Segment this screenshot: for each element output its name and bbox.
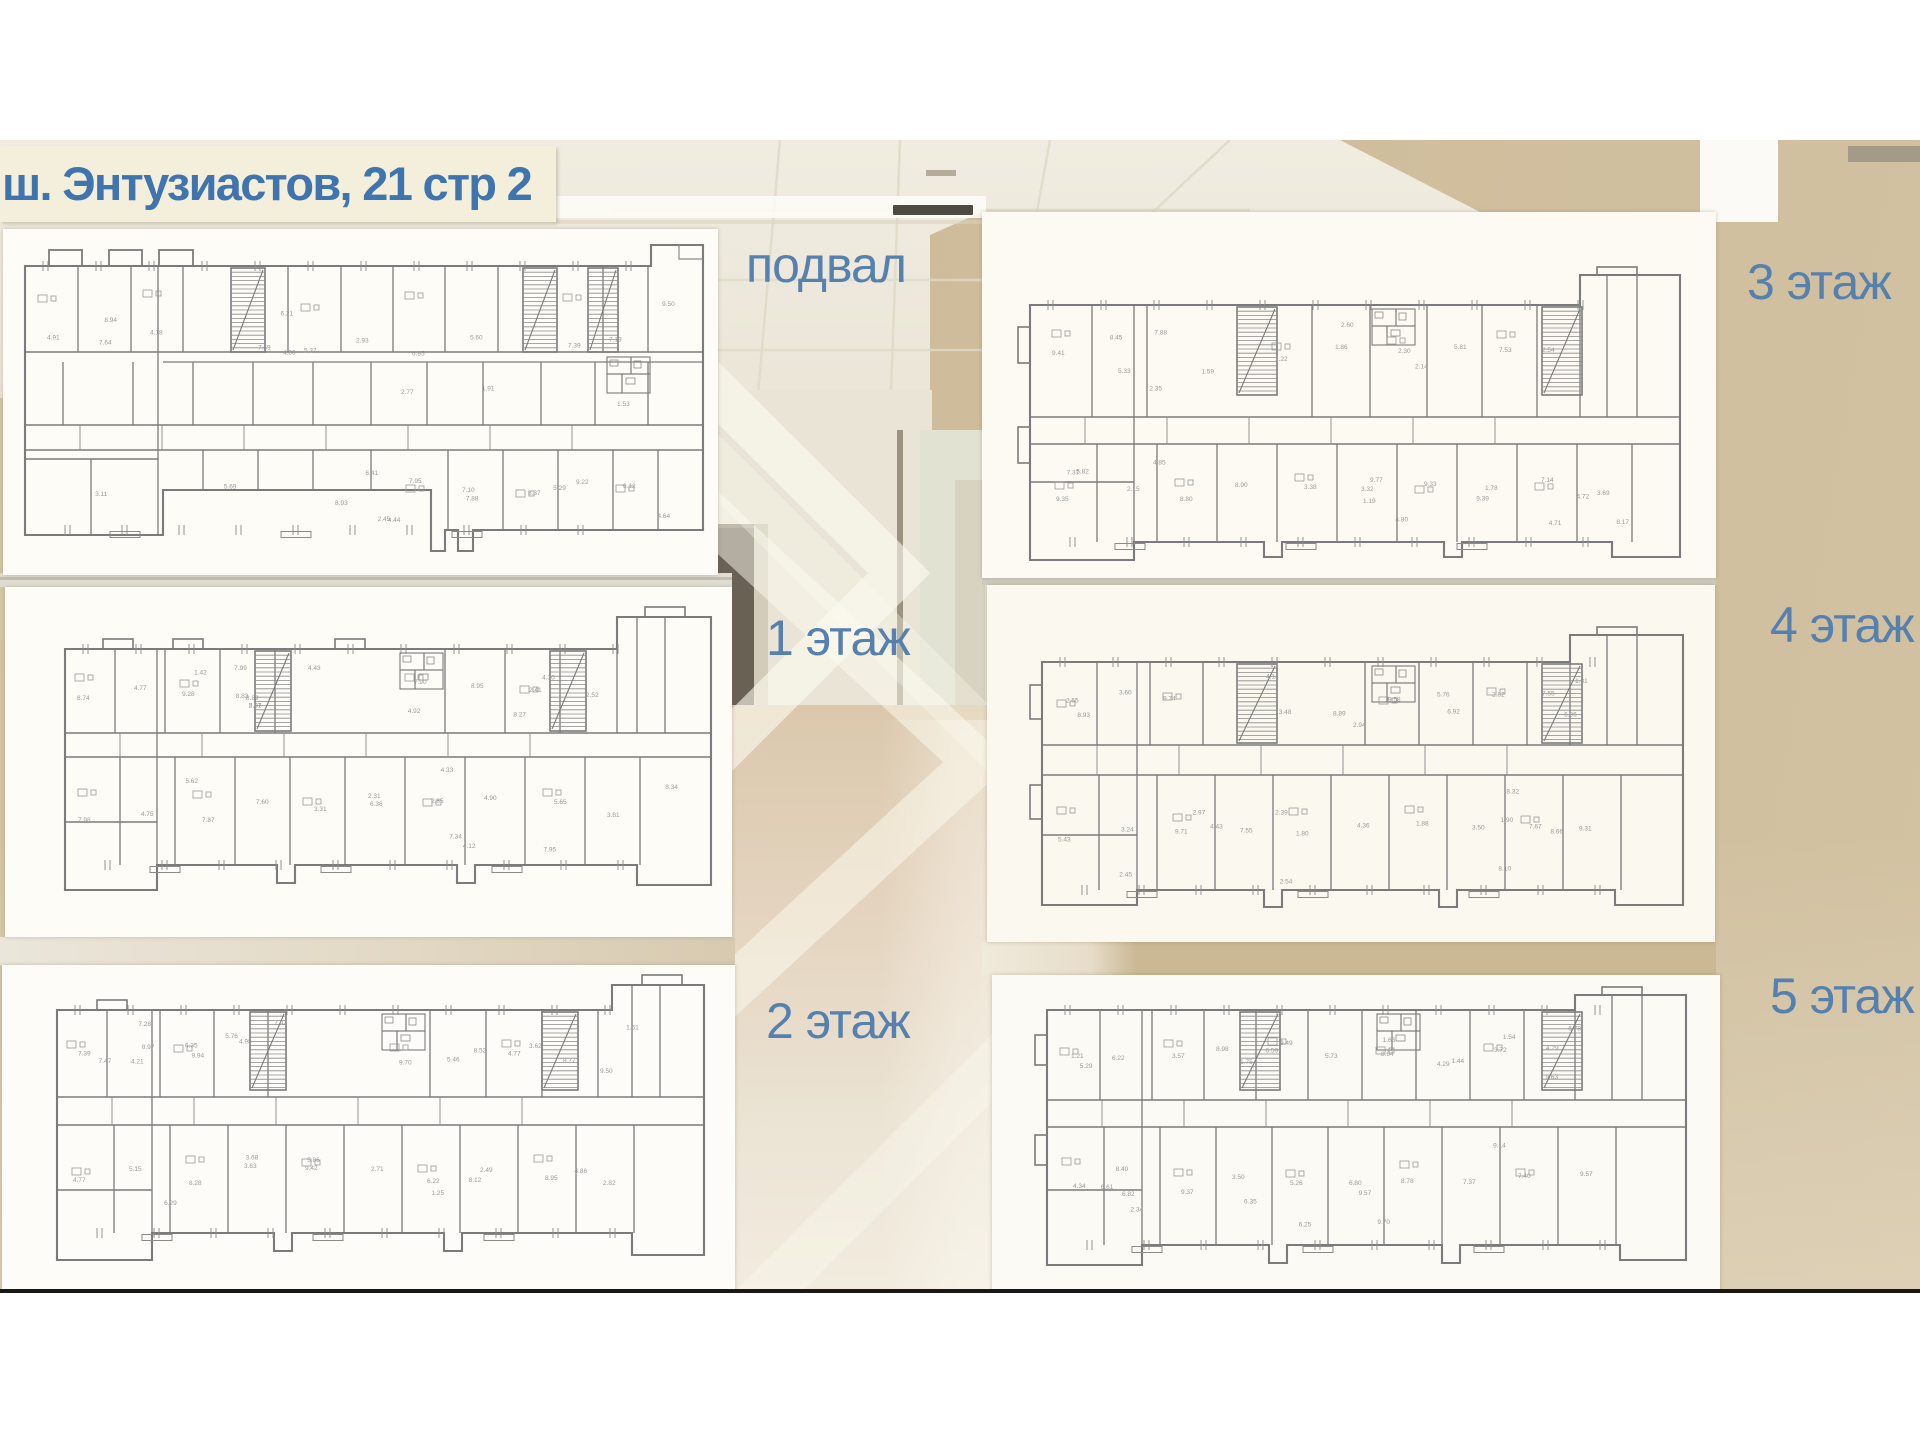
- svg-text:2.93: 2.93: [356, 338, 369, 345]
- svg-text:7.60: 7.60: [256, 799, 269, 806]
- svg-text:1.63: 1.63: [1383, 1037, 1396, 1044]
- svg-text:8.74: 8.74: [77, 695, 90, 702]
- svg-text:4.98: 4.98: [239, 1039, 252, 1046]
- svg-text:4.36: 4.36: [1357, 823, 1370, 830]
- svg-text:1.91: 1.91: [482, 385, 495, 392]
- svg-text:3.72: 3.72: [1494, 1047, 1507, 1054]
- svg-text:2.94: 2.94: [1353, 722, 1366, 729]
- svg-text:2.31: 2.31: [368, 793, 381, 800]
- svg-text:3.69: 3.69: [1597, 490, 1610, 497]
- svg-text:5.15: 5.15: [129, 1166, 142, 1173]
- svg-text:6.29: 6.29: [164, 1200, 177, 1207]
- svg-text:4.77: 4.77: [508, 1051, 521, 1058]
- svg-text:9.35: 9.35: [1056, 496, 1069, 503]
- svg-text:4.43: 4.43: [308, 665, 321, 672]
- svg-text:7.88: 7.88: [1154, 330, 1167, 337]
- svg-text:9.70: 9.70: [399, 1060, 412, 1067]
- svg-text:4.71: 4.71: [1549, 520, 1562, 527]
- svg-text:9.70: 9.70: [1377, 1219, 1390, 1226]
- svg-text:8.28: 8.28: [189, 1180, 202, 1187]
- svg-text:8.98: 8.98: [1216, 1046, 1229, 1053]
- svg-text:7.10: 7.10: [462, 487, 475, 494]
- svg-text:9.74: 9.74: [1163, 696, 1176, 703]
- svg-text:8.94: 8.94: [104, 317, 117, 324]
- svg-text:9.14: 9.14: [1493, 1142, 1506, 1149]
- svg-text:4.80: 4.80: [283, 349, 296, 356]
- svg-text:6.59: 6.59: [1266, 1047, 1279, 1054]
- svg-text:7.55: 7.55: [1240, 828, 1253, 835]
- svg-text:2.60: 2.60: [1341, 322, 1354, 329]
- svg-text:6.61: 6.61: [1101, 1184, 1114, 1191]
- svg-text:9.58: 9.58: [1388, 697, 1401, 704]
- svg-text:3.11: 3.11: [95, 491, 108, 498]
- svg-text:4.29: 4.29: [1437, 1061, 1450, 1068]
- svg-text:2.77: 2.77: [401, 389, 414, 396]
- svg-text:3.62: 3.62: [529, 1043, 542, 1050]
- svg-text:4.92: 4.92: [408, 708, 421, 715]
- svg-text:5.60: 5.60: [470, 335, 483, 342]
- svg-text:6.22: 6.22: [1112, 1055, 1125, 1062]
- svg-text:2.91: 2.91: [249, 703, 262, 710]
- svg-text:9.94: 9.94: [191, 1052, 204, 1059]
- svg-text:7.37: 7.37: [1463, 1179, 1476, 1186]
- svg-text:6.36: 6.36: [370, 801, 383, 808]
- svg-text:3.31: 3.31: [314, 806, 327, 813]
- svg-text:7.28: 7.28: [138, 1021, 151, 1028]
- svg-text:3.60: 3.60: [1119, 690, 1132, 697]
- svg-text:9.41: 9.41: [1052, 350, 1065, 357]
- svg-text:8.34: 8.34: [665, 784, 678, 791]
- svg-text:1.90: 1.90: [1501, 817, 1514, 824]
- svg-text:6.92: 6.92: [1447, 708, 1460, 715]
- svg-text:1.44: 1.44: [1451, 1058, 1464, 1065]
- svg-text:3.32: 3.32: [1361, 486, 1374, 493]
- svg-text:4.43: 4.43: [1210, 823, 1223, 830]
- svg-text:7.19: 7.19: [609, 337, 622, 344]
- svg-text:2.49: 2.49: [480, 1167, 493, 1174]
- svg-text:5.37: 5.37: [304, 348, 317, 355]
- svg-text:5.29: 5.29: [1080, 1063, 1093, 1070]
- svg-text:3.50: 3.50: [1232, 1174, 1245, 1181]
- svg-text:2.82: 2.82: [603, 1180, 616, 1187]
- svg-text:6.82: 6.82: [1122, 1191, 1135, 1198]
- svg-text:8.93: 8.93: [335, 500, 348, 507]
- svg-text:8.66: 8.66: [1550, 829, 1563, 836]
- svg-text:4.30: 4.30: [542, 674, 555, 681]
- svg-text:7.95: 7.95: [409, 478, 422, 485]
- svg-text:6.35: 6.35: [1244, 1199, 1257, 1206]
- svg-text:5.29: 5.29: [553, 485, 566, 492]
- svg-text:8.52: 8.52: [474, 1048, 487, 1055]
- svg-text:4.33: 4.33: [441, 767, 454, 774]
- svg-text:8.45: 8.45: [1110, 334, 1123, 341]
- svg-text:7.53: 7.53: [1499, 347, 1512, 354]
- svg-text:9.50: 9.50: [600, 1068, 613, 1075]
- svg-text:2.35: 2.35: [1149, 386, 1162, 393]
- svg-text:1.78: 1.78: [1485, 485, 1498, 492]
- svg-text:1.53: 1.53: [617, 401, 630, 408]
- svg-text:5.69: 5.69: [224, 483, 237, 490]
- svg-text:8.17: 8.17: [1616, 519, 1629, 526]
- svg-text:2.54: 2.54: [1280, 879, 1293, 886]
- svg-text:2.71: 2.71: [371, 1166, 384, 1173]
- svg-text:5.26: 5.26: [1290, 1180, 1303, 1187]
- svg-text:9.31: 9.31: [1579, 826, 1592, 833]
- svg-text:9.39: 9.39: [1476, 496, 1489, 503]
- svg-text:1.88: 1.88: [1416, 821, 1429, 828]
- svg-text:3.57: 3.57: [1172, 1053, 1185, 1060]
- svg-text:7.88: 7.88: [466, 495, 479, 502]
- svg-text:2.30: 2.30: [1398, 348, 1411, 355]
- svg-text:9.57: 9.57: [1580, 1171, 1593, 1178]
- svg-text:4.64: 4.64: [657, 513, 670, 520]
- svg-text:3.68: 3.68: [246, 1154, 259, 1161]
- svg-text:9.71: 9.71: [1175, 829, 1188, 836]
- svg-text:9.77: 9.77: [1370, 477, 1383, 484]
- svg-text:6.96: 6.96: [1564, 711, 1577, 718]
- svg-text:4.12: 4.12: [463, 843, 476, 850]
- svg-text:7.64: 7.64: [99, 340, 112, 347]
- svg-text:5.46: 5.46: [447, 1057, 460, 1064]
- svg-text:7.67: 7.67: [1529, 824, 1542, 831]
- svg-text:2.45: 2.45: [1119, 871, 1132, 878]
- svg-text:3.50: 3.50: [1472, 825, 1485, 832]
- svg-text:4.91: 4.91: [47, 335, 60, 342]
- svg-text:4.85: 4.85: [1153, 460, 1166, 467]
- svg-text:7.55: 7.55: [1542, 691, 1555, 698]
- svg-text:2.34: 2.34: [1131, 1206, 1144, 1213]
- svg-text:8.77: 8.77: [563, 1058, 576, 1065]
- svg-text:9.28: 9.28: [182, 691, 195, 698]
- svg-text:1.75: 1.75: [1240, 1059, 1253, 1066]
- svg-text:4.75: 4.75: [141, 811, 154, 818]
- svg-text:4.90: 4.90: [484, 795, 497, 802]
- svg-text:1.54: 1.54: [1503, 1034, 1516, 1041]
- svg-text:4.29: 4.29: [1546, 1045, 1559, 1052]
- svg-text:8.93: 8.93: [1077, 712, 1090, 719]
- svg-text:1.80: 1.80: [1296, 831, 1309, 838]
- svg-text:3.38: 3.38: [1304, 484, 1317, 491]
- svg-text:2.14: 2.14: [1415, 364, 1428, 371]
- svg-text:1.25: 1.25: [431, 1190, 444, 1197]
- svg-text:2.41: 2.41: [529, 687, 542, 694]
- svg-text:5.76: 5.76: [1437, 692, 1450, 699]
- svg-text:7.42: 7.42: [274, 1020, 287, 1027]
- svg-text:4.21: 4.21: [131, 1059, 144, 1066]
- svg-text:8.32: 8.32: [1506, 789, 1519, 796]
- svg-text:7.39: 7.39: [78, 1051, 91, 1058]
- svg-text:5.73: 5.73: [1325, 1053, 1338, 1060]
- svg-text:7.98: 7.98: [78, 817, 91, 824]
- svg-text:1.19: 1.19: [1363, 498, 1376, 505]
- svg-text:9.63: 9.63: [1546, 1074, 1559, 1081]
- svg-text:1.61: 1.61: [626, 1024, 639, 1031]
- svg-text:1.81: 1.81: [1575, 678, 1588, 685]
- svg-text:7.87: 7.87: [202, 817, 215, 824]
- svg-text:4.72: 4.72: [1577, 493, 1590, 500]
- svg-text:5.65: 5.65: [554, 799, 567, 806]
- svg-text:6.80: 6.80: [1349, 1180, 1362, 1187]
- svg-text:2.85: 2.85: [431, 798, 444, 805]
- svg-text:6.78: 6.78: [1568, 1026, 1581, 1033]
- svg-text:8.80: 8.80: [1180, 496, 1193, 503]
- svg-text:3.63: 3.63: [244, 1163, 257, 1170]
- svg-text:1.86: 1.86: [1335, 344, 1348, 351]
- svg-text:9.49: 9.49: [1280, 1040, 1293, 1047]
- svg-text:4.77: 4.77: [134, 685, 147, 692]
- svg-text:4.34: 4.34: [1073, 1183, 1086, 1190]
- svg-text:2.39: 2.39: [1275, 809, 1288, 816]
- svg-text:3.48: 3.48: [1279, 709, 1292, 716]
- svg-text:4.44: 4.44: [388, 517, 401, 524]
- svg-text:5.43: 5.43: [1058, 837, 1071, 844]
- svg-text:2.15: 2.15: [1127, 486, 1140, 493]
- svg-text:5.62: 5.62: [185, 778, 198, 785]
- svg-text:6.22: 6.22: [427, 1178, 440, 1185]
- svg-text:8.89: 8.89: [1333, 711, 1346, 718]
- svg-text:7.95: 7.95: [544, 846, 557, 853]
- svg-text:4.14: 4.14: [1266, 674, 1279, 681]
- svg-text:8.90: 8.90: [1235, 482, 1248, 489]
- svg-text:8.78: 8.78: [1401, 1178, 1414, 1185]
- svg-text:2.97: 2.97: [1193, 810, 1206, 817]
- svg-text:8.95: 8.95: [545, 1175, 558, 1182]
- svg-text:9.57: 9.57: [1359, 1190, 1372, 1197]
- svg-text:8.12: 8.12: [469, 1177, 482, 1184]
- svg-text:9.22: 9.22: [576, 479, 589, 486]
- svg-text:6.41: 6.41: [365, 470, 378, 477]
- svg-text:6.95: 6.95: [412, 351, 425, 358]
- svg-text:9.37: 9.37: [1181, 1189, 1194, 1196]
- svg-text:8.27: 8.27: [513, 711, 526, 718]
- svg-text:5.33: 5.33: [1118, 368, 1131, 375]
- svg-text:9.50: 9.50: [662, 301, 675, 308]
- svg-text:7.34: 7.34: [449, 834, 462, 841]
- svg-text:7.99: 7.99: [234, 665, 247, 672]
- svg-text:7.69: 7.69: [258, 345, 271, 352]
- svg-text:6.25: 6.25: [1299, 1221, 1312, 1228]
- svg-text:8.40: 8.40: [1116, 1166, 1129, 1173]
- svg-text:8.83: 8.83: [236, 693, 249, 700]
- svg-text:3.81: 3.81: [607, 812, 620, 819]
- svg-text:7.39: 7.39: [568, 343, 581, 350]
- svg-text:2.52: 2.52: [586, 692, 599, 699]
- svg-text:8.95: 8.95: [471, 683, 484, 690]
- svg-text:4.80: 4.80: [1395, 516, 1408, 523]
- svg-text:6.21: 6.21: [281, 310, 294, 317]
- svg-text:8.64: 8.64: [1381, 1051, 1394, 1058]
- svg-text:5.81: 5.81: [1454, 344, 1467, 351]
- svg-text:4.77: 4.77: [73, 1177, 86, 1184]
- svg-text:2.54: 2.54: [1542, 347, 1555, 354]
- svg-text:3.24: 3.24: [1121, 827, 1134, 834]
- svg-text:4.86: 4.86: [574, 1168, 587, 1175]
- svg-text:5.86: 5.86: [307, 1157, 320, 1164]
- svg-text:8.97: 8.97: [142, 1044, 155, 1051]
- svg-text:7.37: 7.37: [1067, 469, 1080, 476]
- svg-text:1.59: 1.59: [1201, 369, 1214, 376]
- svg-text:1.22: 1.22: [1275, 356, 1288, 363]
- svg-text:8.10: 8.10: [1498, 865, 1511, 872]
- svg-text:7.47: 7.47: [99, 1058, 112, 1065]
- svg-text:4.18: 4.18: [150, 330, 163, 337]
- svg-text:1.42: 1.42: [194, 669, 207, 676]
- svg-text:5.76: 5.76: [225, 1033, 238, 1040]
